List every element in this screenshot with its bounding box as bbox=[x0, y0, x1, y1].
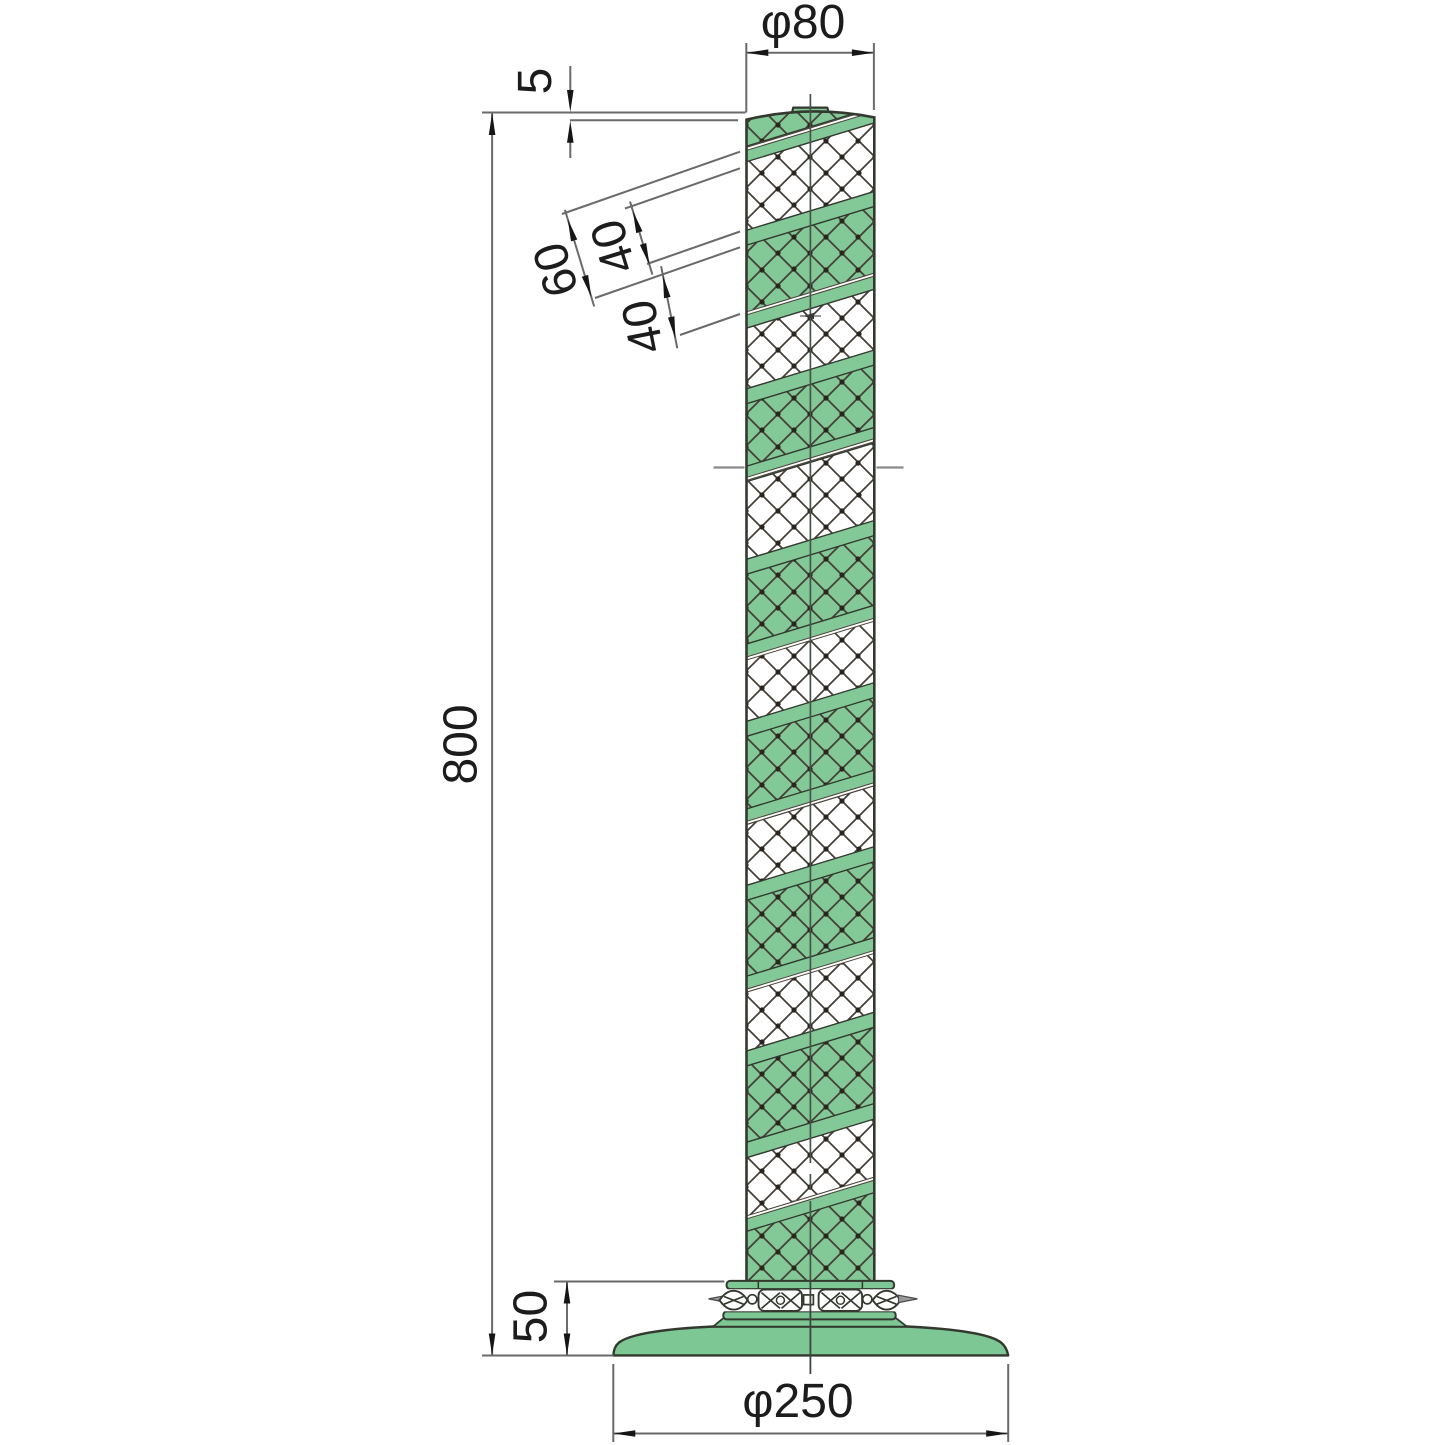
svg-text:800: 800 bbox=[434, 704, 487, 784]
svg-text:φ80: φ80 bbox=[761, 0, 846, 49]
svg-text:5: 5 bbox=[509, 68, 562, 95]
svg-text:50: 50 bbox=[504, 1290, 557, 1343]
svg-text:40: 40 bbox=[612, 295, 674, 358]
svg-text:φ250: φ250 bbox=[742, 1375, 853, 1428]
